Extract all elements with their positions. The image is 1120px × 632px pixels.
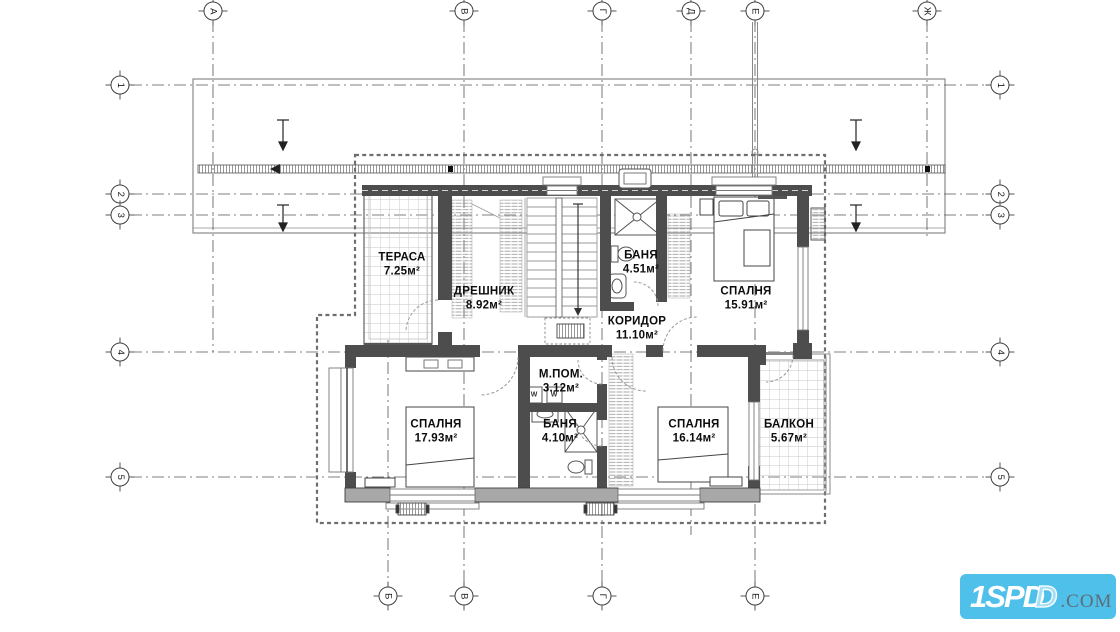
axis-bubble-bottom-v: В <box>455 587 474 606</box>
window-left-bedroom <box>329 368 353 472</box>
sink-icon <box>609 274 626 298</box>
axis-bubble-bottom-g: Г <box>593 587 612 606</box>
roof-edge-strip <box>198 164 945 174</box>
washer-label: W <box>531 392 538 399</box>
room-label-utility: М.ПОМ.3.12м² <box>539 368 583 395</box>
logo-text-d-outline: D <box>1035 581 1057 612</box>
axis-bubble-left-3: 3 <box>111 206 130 225</box>
logo-text: 1SP <box>970 581 1023 612</box>
axis-bubble-top-zh: Ж <box>918 2 937 21</box>
axis-bubble-left-5: 5 <box>111 468 130 487</box>
room-label-bedroom-right-bottom: СПАЛНЯ16.14м² <box>668 418 719 445</box>
room-label-bedroom-right-top: СПАЛНЯ15.91м² <box>720 285 771 312</box>
axis-bubble-right-5: 5 <box>991 468 1010 487</box>
room-label-corridor: КОРИДОР11.10м² <box>608 315 666 342</box>
axis-bubble-bottom-b: Б <box>379 587 398 606</box>
bedroom-bottom-wardrobe <box>609 354 633 486</box>
floor-plan-canvas: ТЕРАСА7.25м² ДРЕШНИК8.92м² БАНЯ4.51м² СП… <box>0 0 1120 632</box>
room-label-bath-lower: БАНЯ4.10м² <box>542 418 578 445</box>
axis-bubble-top-v: В <box>455 2 474 21</box>
axis-bubble-bottom-e: Е <box>746 587 765 606</box>
chimney <box>619 169 651 188</box>
axis-bubble-top-d: Д <box>682 2 701 21</box>
shower-icon <box>615 199 660 235</box>
axis-bubble-right-1: 1 <box>991 76 1010 95</box>
room-label-bedroom-left: СПАЛНЯ17.93м² <box>410 418 461 445</box>
axis-bubble-top-a: А <box>204 2 223 21</box>
axis-bubble-right-4: 4 <box>991 343 1010 362</box>
window-right-bedroom <box>798 247 808 330</box>
room-label-balcony: БАЛКОН5.67м² <box>764 418 814 445</box>
ac-unit <box>811 208 825 240</box>
axis-bubble-right-3: 3 <box>991 206 1010 225</box>
floor-plan-drawing <box>0 0 1120 632</box>
bed-bedroom-right-top <box>700 193 787 281</box>
window-top-bedroom <box>712 177 776 195</box>
axis-bubble-left-1: 1 <box>111 76 130 95</box>
axis-bubble-top-g: Г <box>593 2 612 21</box>
room-label-terrace: ТЕРАСА7.25м² <box>378 251 425 278</box>
logo-1spd-watermark: 1SPDD.COM <box>960 574 1116 619</box>
window-top-stairs <box>543 177 581 195</box>
bedroom-top-wardrobe <box>668 214 690 298</box>
window-bottom-right <box>614 489 704 509</box>
window-balcony-wall <box>749 402 759 480</box>
logo-suffix: .COM <box>1060 592 1112 611</box>
toilet-icon <box>568 460 592 474</box>
room-label-bath-upper: БАНЯ4.51м² <box>623 249 659 276</box>
axis-bubble-top-e: Е <box>746 2 765 21</box>
staircase <box>525 198 597 317</box>
room-label-closet: ДРЕШНИК8.92м² <box>454 285 514 312</box>
axis-bubble-left-4: 4 <box>111 343 130 362</box>
washer-label: W <box>551 392 558 399</box>
